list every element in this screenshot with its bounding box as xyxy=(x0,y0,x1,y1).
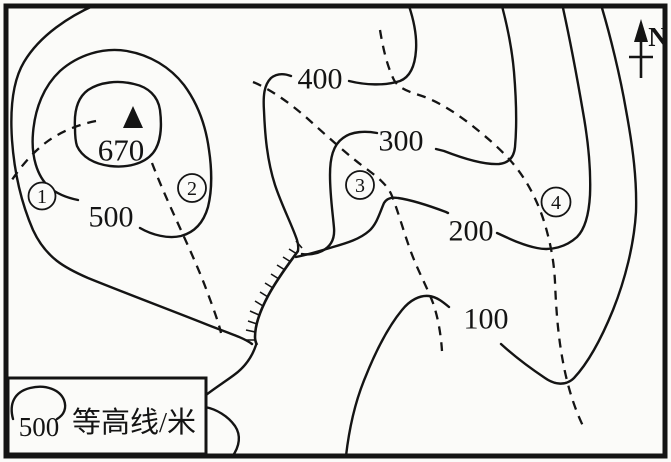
legend: 500 等高线/米 xyxy=(8,378,206,454)
topographic-map: 500 等高线/米 N 670 400 300 500 200 100 1 2 … xyxy=(0,0,671,462)
marker-circled-1: 1 xyxy=(29,183,56,210)
peak-elevation-label: 670 xyxy=(98,133,145,168)
north-label: N xyxy=(648,22,668,52)
contour-label-100: 100 xyxy=(464,303,509,336)
marker-4-label: 4 xyxy=(551,192,561,214)
marker-3-label: 3 xyxy=(355,175,365,197)
contour-label-200: 200 xyxy=(449,215,494,248)
marker-circled-3: 3 xyxy=(346,171,374,199)
marker-1-label: 1 xyxy=(37,186,47,208)
contour-label-400: 400 xyxy=(298,63,343,96)
marker-2-label: 2 xyxy=(187,178,197,200)
marker-circled-4: 4 xyxy=(542,188,571,217)
contour-label-300: 300 xyxy=(379,125,424,158)
marker-circled-2: 2 xyxy=(178,174,206,202)
legend-sample-value: 500 xyxy=(19,412,60,442)
contour-label-500: 500 xyxy=(89,201,134,234)
legend-label: 等高线/米 xyxy=(72,406,196,439)
